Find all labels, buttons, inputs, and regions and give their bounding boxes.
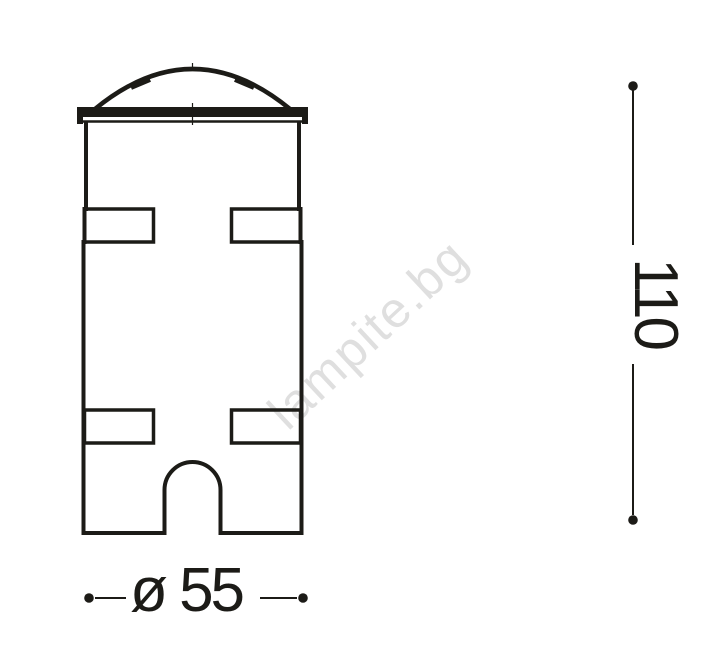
clip-slot-top-left: [85, 209, 154, 242]
dimension-dot-bottom: [628, 515, 638, 525]
body-outline: [84, 122, 302, 533]
dimension-dot-left: [84, 593, 94, 603]
clip-slot-bottom-right: [232, 410, 301, 443]
diameter-dimension-label: ø 55: [130, 556, 243, 625]
flange: [77, 103, 308, 125]
dimension-dot-right: [298, 593, 308, 603]
fixture-drawing: 110 ø 55: [0, 0, 726, 672]
flange-end-right: [302, 107, 308, 124]
clip-slot-bottom-left: [85, 410, 154, 443]
dimension-dot-top: [628, 81, 638, 91]
diameter-dimension: ø 55: [84, 556, 308, 625]
flange-end-left: [77, 107, 83, 124]
height-dimension-label: 110: [621, 258, 690, 349]
height-dimension: 110: [621, 81, 690, 525]
technical-drawing-page: lampite.bg: [0, 0, 726, 672]
fixture-outline: [77, 63, 308, 533]
clip-slot-top-right: [232, 209, 301, 242]
